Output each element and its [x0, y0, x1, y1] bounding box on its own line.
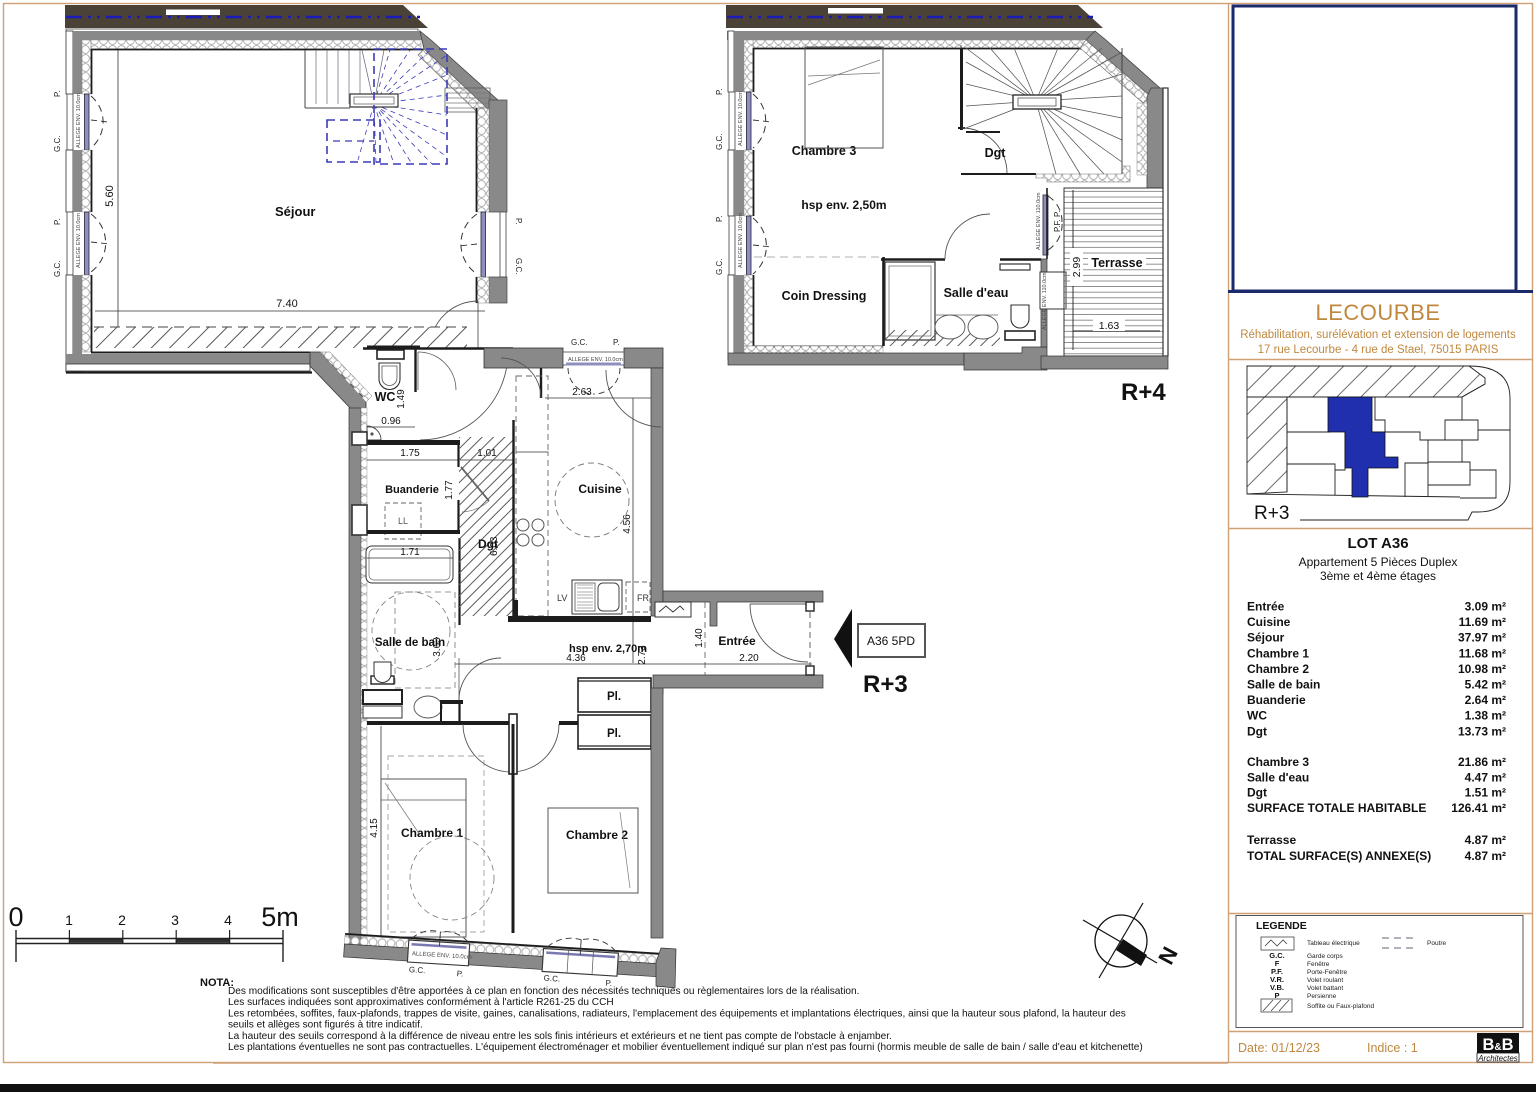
svg-text:G.C.: G.C. — [409, 965, 426, 975]
svg-text:FR: FR — [637, 593, 649, 603]
svg-text:11.68 m²: 11.68 m² — [1459, 646, 1506, 660]
svg-text:4: 4 — [224, 912, 232, 928]
svg-text:7.40: 7.40 — [276, 298, 297, 310]
svg-text:A36 5PD: A36 5PD — [867, 634, 915, 648]
svg-text:Cuisine: Cuisine — [578, 482, 622, 496]
svg-text:1.71: 1.71 — [400, 547, 420, 558]
svg-text:Fenêtre: Fenêtre — [1307, 961, 1330, 968]
svg-text:P.: P. — [53, 218, 62, 225]
svg-text:6.03: 6.03 — [489, 536, 500, 556]
svg-text:G.C.: G.C. — [53, 261, 62, 277]
svg-text:Garde corps: Garde corps — [1307, 953, 1344, 960]
svg-text:ALLEGE ENV. 10.0cm: ALLEGE ENV. 10.0cm — [76, 213, 82, 268]
svg-text:P.: P. — [613, 338, 620, 347]
svg-text:G.C.: G.C. — [53, 136, 62, 152]
svg-text:1.77: 1.77 — [444, 480, 455, 500]
svg-text:Des modifications sont suscept: Des modifications sont susceptibles d'êt… — [228, 986, 859, 997]
svg-text:G.C.: G.C. — [571, 338, 587, 347]
svg-text:4.87 m²: 4.87 m² — [1465, 833, 1506, 847]
svg-text:P.: P. — [715, 88, 724, 95]
svg-text:ALLEGE ENV. 10.0cm: ALLEGE ENV. 10.0cm — [568, 357, 623, 363]
svg-text:3ème et 4ème étages: 3ème et 4ème étages — [1320, 569, 1436, 583]
svg-text:P.F. P.: P.F. P. — [1053, 211, 1062, 233]
svg-text:Pl.: Pl. — [607, 728, 621, 740]
svg-text:R+4: R+4 — [1121, 379, 1166, 406]
svg-text:5m: 5m — [261, 902, 299, 932]
svg-text:Volet battant: Volet battant — [1307, 985, 1343, 992]
svg-text:21.86 m²: 21.86 m² — [1458, 755, 1506, 769]
svg-text:3.09 m²: 3.09 m² — [1465, 600, 1506, 614]
svg-text:Poutre: Poutre — [1427, 940, 1447, 947]
svg-text:4.87 m²: 4.87 m² — [1465, 849, 1506, 863]
svg-text:1.40: 1.40 — [694, 628, 705, 648]
svg-text:Persienne: Persienne — [1307, 993, 1337, 1000]
svg-text:Chambre 3: Chambre 3 — [1247, 755, 1309, 769]
svg-text:Coin Dressing: Coin Dressing — [782, 289, 867, 303]
svg-text:TOTAL SURFACE(S) ANNEXE(S): TOTAL SURFACE(S) ANNEXE(S) — [1247, 849, 1431, 863]
svg-text:Entrée: Entrée — [1247, 600, 1285, 614]
svg-text:ALLEGE ENV. 10.0cm: ALLEGE ENV. 10.0cm — [738, 91, 744, 146]
svg-text:Dgt: Dgt — [1247, 724, 1267, 738]
svg-text:0: 0 — [8, 902, 23, 932]
svg-text:1.38 m²: 1.38 m² — [1465, 709, 1506, 723]
svg-text:La hauteur des seuils correspo: La hauteur des seuils correspond à la di… — [228, 1031, 892, 1042]
svg-text:Terrasse: Terrasse — [1247, 833, 1296, 847]
svg-text:hsp env. 2,50m: hsp env. 2,50m — [801, 198, 886, 212]
svg-text:Pl.: Pl. — [607, 691, 621, 703]
svg-text:Buanderie: Buanderie — [1247, 693, 1306, 707]
svg-text:Soffite ou Faux-plafond: Soffite ou Faux-plafond — [1307, 1003, 1374, 1010]
svg-text:SURFACE TOTALE HABITABLE: SURFACE TOTALE HABITABLE — [1247, 801, 1426, 815]
svg-text:P.: P. — [457, 969, 464, 978]
svg-text:126.41 m²: 126.41 m² — [1451, 801, 1506, 815]
svg-text:LOT A36: LOT A36 — [1347, 535, 1408, 552]
svg-text:0.96: 0.96 — [381, 416, 401, 427]
svg-text:R+3: R+3 — [863, 671, 908, 698]
svg-text:Chambre 2: Chambre 2 — [566, 828, 628, 842]
svg-text:Chambre 1: Chambre 1 — [401, 826, 463, 840]
svg-text:ALLEGE ENV. 10.0cm: ALLEGE ENV. 10.0cm — [76, 93, 82, 148]
svg-text:ALLEGE ENV. 110.0cm: ALLEGE ENV. 110.0cm — [1042, 272, 1048, 330]
svg-text:2.63: 2.63 — [572, 387, 592, 398]
svg-text:Dgt: Dgt — [985, 146, 1007, 160]
svg-text:13.73 m²: 13.73 m² — [1458, 724, 1506, 738]
svg-text:1.49: 1.49 — [396, 389, 407, 409]
svg-text:P.: P. — [715, 215, 724, 222]
svg-text:seuils et allèges sont figurés: seuils et allèges sont figurés à titre i… — [228, 1020, 423, 1031]
svg-text:4.56: 4.56 — [622, 514, 633, 534]
svg-text:Chambre 3: Chambre 3 — [792, 144, 857, 158]
svg-text:P.: P. — [53, 90, 62, 97]
svg-text:Buanderie: Buanderie — [385, 484, 439, 496]
svg-text:Les surfaces indiquées sont ap: Les surfaces indiquées sont approximativ… — [228, 997, 614, 1008]
svg-text:Cuisine: Cuisine — [1247, 615, 1291, 629]
svg-text:ALLEGE ENV. 110.0cm: ALLEGE ENV. 110.0cm — [1036, 192, 1042, 250]
svg-text:2: 2 — [118, 912, 126, 928]
svg-text:ALLEGE ENV. 10.0cm: ALLEGE ENV. 10.0cm — [738, 213, 744, 268]
svg-text:5.60: 5.60 — [104, 185, 116, 206]
svg-text:1.63: 1.63 — [1099, 320, 1120, 332]
svg-text:Séjour: Séjour — [1247, 631, 1285, 645]
svg-text:LEGENDE: LEGENDE — [1256, 920, 1307, 932]
svg-text:WC: WC — [375, 390, 396, 404]
svg-text:Salle d'eau: Salle d'eau — [944, 286, 1009, 300]
svg-text:Terrasse: Terrasse — [1091, 256, 1142, 270]
svg-text:Indice : 1: Indice : 1 — [1367, 1041, 1418, 1055]
svg-text:G.C.: G.C. — [715, 259, 724, 275]
svg-text:Dgt: Dgt — [1247, 786, 1267, 800]
svg-text:LL: LL — [398, 516, 408, 526]
svg-text:2.73: 2.73 — [637, 645, 648, 665]
svg-text:Appartement 5 Pièces Duplex: Appartement 5 Pièces Duplex — [1299, 555, 1458, 569]
svg-text:WC: WC — [1247, 709, 1267, 723]
svg-text:37.97 m²: 37.97 m² — [1458, 631, 1506, 645]
svg-text:Salle d'eau: Salle d'eau — [1247, 770, 1309, 784]
svg-text:4.15: 4.15 — [369, 818, 380, 838]
svg-text:Salle de bain: Salle de bain — [1247, 678, 1320, 692]
svg-text:1: 1 — [65, 912, 73, 928]
svg-text:R+3: R+3 — [1254, 503, 1289, 524]
svg-text:Séjour: Séjour — [275, 204, 315, 219]
svg-text:G.C.: G.C. — [715, 134, 724, 150]
svg-text:3: 3 — [171, 912, 179, 928]
svg-text:LV: LV — [557, 593, 567, 603]
svg-text:Entrée: Entrée — [718, 634, 756, 648]
svg-text:4.36: 4.36 — [566, 653, 586, 664]
svg-text:G.C.: G.C. — [514, 258, 523, 274]
svg-text:Tableau électrique: Tableau électrique — [1307, 940, 1360, 947]
svg-text:Chambre 1: Chambre 1 — [1247, 646, 1309, 660]
svg-text:2.99: 2.99 — [1071, 257, 1083, 278]
svg-text:2.64 m²: 2.64 m² — [1465, 693, 1506, 707]
svg-text:1.75: 1.75 — [400, 448, 420, 459]
svg-text:4.47 m²: 4.47 m² — [1465, 770, 1506, 784]
svg-text:Date: 01/12/23: Date: 01/12/23 — [1238, 1041, 1320, 1055]
svg-text:Architectes: Architectes — [1477, 1054, 1518, 1063]
svg-text:17 rue Lecourbe - 4 rue de St: 17 rue Lecourbe - 4 rue de Stael, 75015 … — [1258, 344, 1499, 356]
svg-text:11.69 m²: 11.69 m² — [1459, 615, 1506, 629]
svg-text:2.20: 2.20 — [739, 653, 759, 664]
svg-text:LECOURBE: LECOURBE — [1315, 300, 1440, 325]
svg-text:3.63: 3.63 — [432, 637, 443, 657]
svg-text:P.: P. — [514, 218, 523, 225]
svg-text:Chambre 2: Chambre 2 — [1247, 662, 1309, 676]
svg-text:Porte-Fenêtre: Porte-Fenêtre — [1307, 969, 1347, 976]
svg-text:Réhabilitation, surélévation e: Réhabilitation, surélévation et extensio… — [1240, 329, 1516, 341]
svg-text:Les plantations éventuelles ne: Les plantations éventuelles ne sont pas … — [228, 1042, 1143, 1053]
svg-text:G.C.: G.C. — [543, 974, 560, 984]
svg-text:Les retombées, soffites, faux-: Les retombées, soffites, faux-plafonds, … — [228, 1008, 1126, 1019]
svg-text:1.51 m²: 1.51 m² — [1465, 786, 1506, 800]
svg-text:5.42 m²: 5.42 m² — [1465, 678, 1506, 692]
svg-text:10.98 m²: 10.98 m² — [1458, 662, 1506, 676]
svg-text:Volet roulant: Volet roulant — [1307, 977, 1343, 984]
